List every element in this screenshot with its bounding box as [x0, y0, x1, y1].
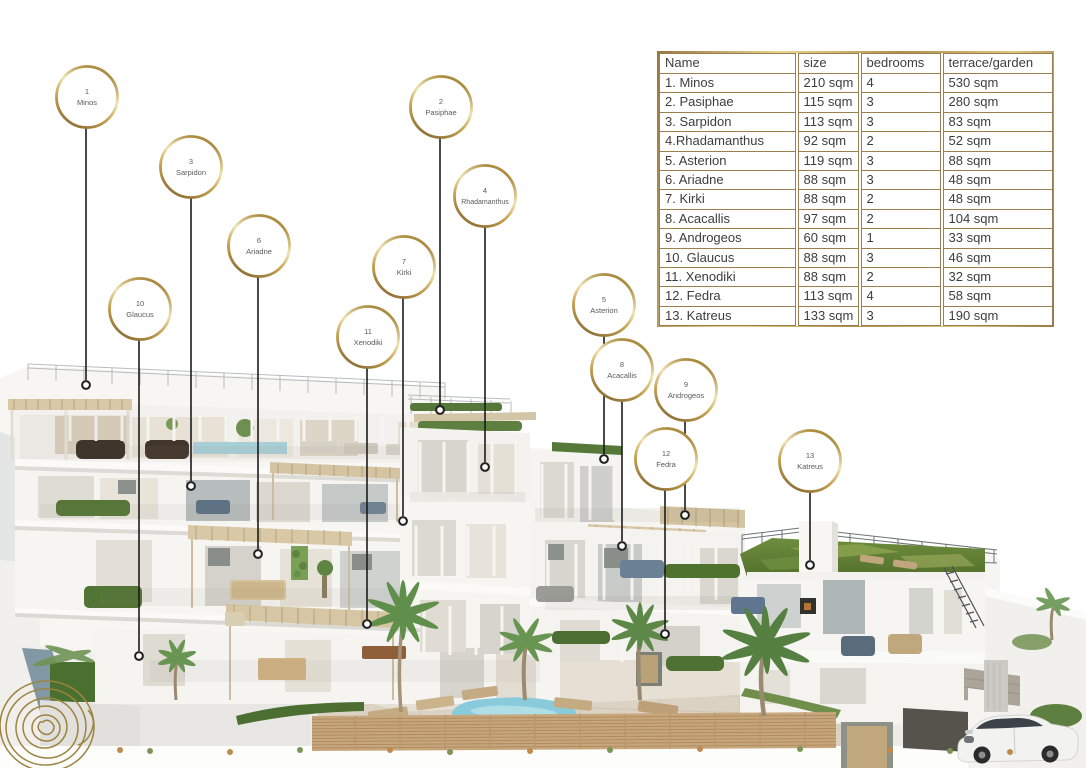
svg-text:Acacallis: Acacallis	[607, 371, 637, 380]
svg-text:Asterion: Asterion	[590, 306, 618, 315]
svg-text:11: 11	[364, 327, 372, 336]
svg-text:Minos: Minos	[77, 98, 97, 107]
svg-text:Rhadamanthus: Rhadamanthus	[461, 199, 509, 206]
svg-text:7: 7	[402, 257, 406, 266]
svg-text:Fedra: Fedra	[656, 460, 676, 469]
svg-text:1: 1	[85, 87, 89, 96]
svg-text:12: 12	[662, 449, 670, 458]
svg-text:Sarpidon: Sarpidon	[176, 168, 206, 177]
svg-text:3: 3	[189, 157, 193, 166]
svg-text:Pasiphae: Pasiphae	[425, 108, 456, 117]
svg-text:10: 10	[136, 299, 144, 308]
svg-text:Kirki: Kirki	[397, 268, 412, 277]
svg-text:8: 8	[620, 360, 624, 369]
svg-text:Androgeos: Androgeos	[668, 391, 705, 400]
svg-text:Glaucus: Glaucus	[126, 310, 154, 319]
svg-text:Ariadne: Ariadne	[246, 247, 272, 256]
svg-text:6: 6	[257, 236, 261, 245]
svg-text:Xenodiki: Xenodiki	[354, 338, 383, 347]
svg-text:2: 2	[439, 97, 443, 106]
svg-text:9: 9	[684, 380, 688, 389]
svg-text:4: 4	[483, 186, 487, 195]
svg-text:13: 13	[806, 451, 814, 460]
svg-text:5: 5	[602, 295, 606, 304]
svg-text:Katreus: Katreus	[797, 462, 823, 471]
